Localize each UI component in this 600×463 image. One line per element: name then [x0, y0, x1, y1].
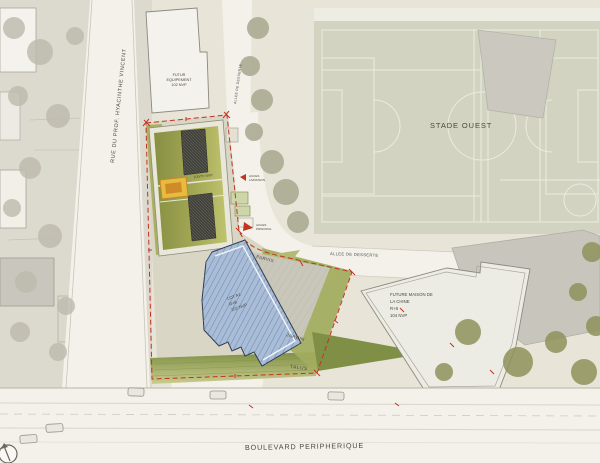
car [210, 391, 226, 399]
futur-equipement-label-3: 102 NVP [171, 83, 187, 87]
small-structure [226, 128, 238, 142]
building-lot-b-green-roof: R+2 100/70 NVP [149, 120, 233, 256]
acces-livraison-label-2: LIVRAISON [249, 178, 265, 182]
maison-chine-label-1: FUTURE MAISON DE [390, 292, 433, 297]
planter-green [231, 192, 248, 204]
maison-chine-label-2: LA CHINE [390, 299, 410, 304]
stadium-top-walk [305, 8, 600, 21]
maison-chine-label-4: 104 NVP [390, 313, 407, 318]
car [128, 388, 144, 397]
stadium-label: STADE OUEST [430, 121, 492, 130]
context-building [0, 170, 26, 228]
stadium: STADE OUEST [305, 8, 600, 234]
skylight-strip [188, 193, 216, 241]
stadium-left-walk [305, 8, 314, 234]
car [328, 392, 344, 400]
site-plan-svg: STADE OUEST FUTUR EQUIPEMENT 102 NVP [0, 0, 600, 463]
stadium-gray-building [478, 30, 556, 118]
acces-principal-label-2: PRINCIPAL [256, 227, 272, 231]
car [46, 424, 63, 433]
maison-chine-label-3: R+8 [390, 306, 399, 311]
futur-equipement-label-2: EQUIPEMENT [166, 78, 192, 82]
boulevard-peripherique: BOULEVARD PERIPHERIQUE [0, 388, 600, 463]
futur-equipement-label-1: FUTUR [173, 73, 186, 77]
canopy-inner [165, 182, 182, 194]
site-plan: STADE OUEST FUTUR EQUIPEMENT 102 NVP [0, 0, 600, 463]
context-building [0, 8, 36, 72]
lot-b-label-1: R+2 [193, 167, 202, 173]
car [20, 434, 38, 443]
